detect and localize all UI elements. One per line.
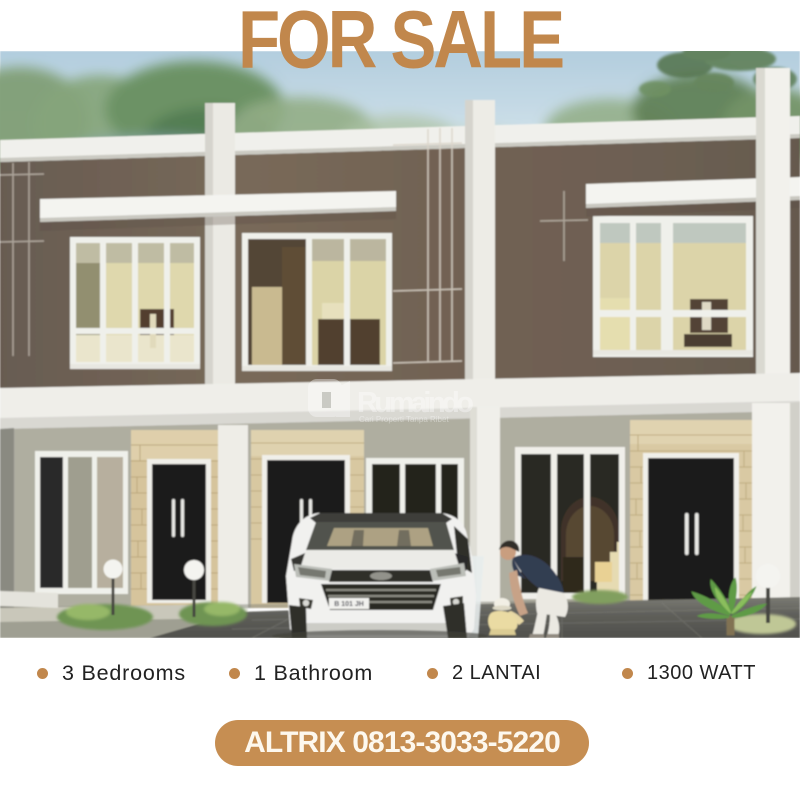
svg-text:Cari Properti Tanpa Ribet: Cari Properti Tanpa Ribet <box>359 415 449 424</box>
